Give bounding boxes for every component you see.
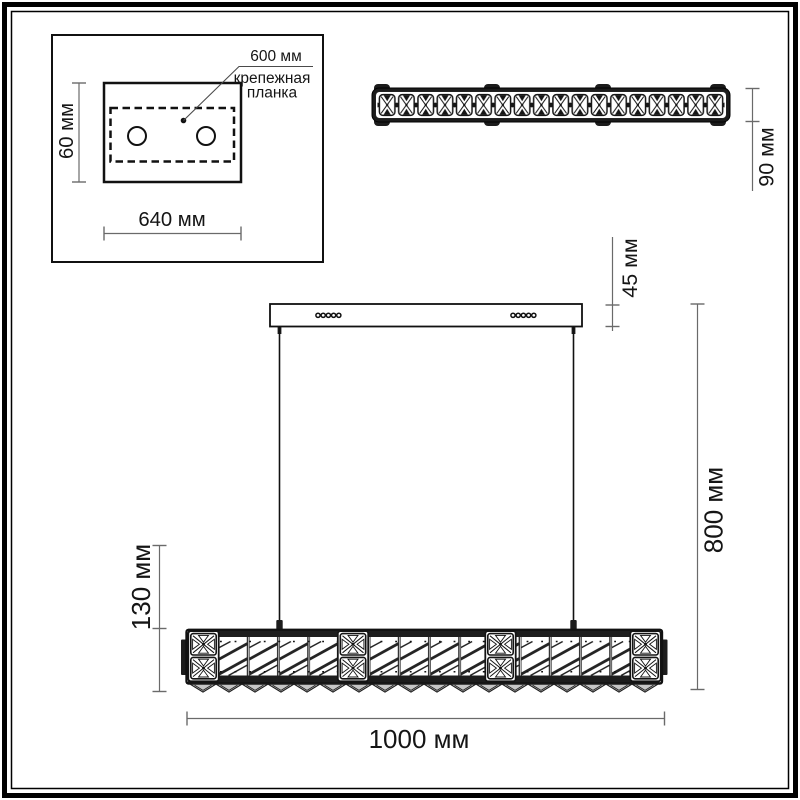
dimension-90mm: 90 мм [746, 88, 779, 191]
ceiling-plate-outline [104, 83, 241, 182]
bar-bottom-rail [188, 676, 660, 683]
bar-top-rail [188, 631, 660, 638]
dimension-1000mm: 1000 мм [187, 712, 665, 755]
suspension-wire-right [570, 327, 576, 631]
dimension-diagram: 600 мм крепежная планка 60 мм 640 мм [0, 0, 800, 800]
facet-section-2 [369, 637, 486, 676]
diagram-page: 600 мм крепежная планка 60 мм 640 мм [0, 0, 800, 800]
dimension-800mm: 800 мм [691, 304, 729, 690]
crystal-scallops [190, 684, 658, 694]
overall-height-label: 800 мм [699, 467, 729, 553]
canopy-height-label: 45 мм [618, 238, 642, 297]
front-view-drawing: 45 мм 800 мм 130 мм 1000 мм [126, 237, 729, 754]
bar-depth-label: 90 мм [755, 127, 779, 186]
plate-height-label: 60 мм [56, 103, 78, 159]
dimension-45mm: 45 мм [606, 237, 643, 331]
hole-spacing-label: 600 мм [250, 48, 301, 65]
bar-width-label: 1000 мм [369, 724, 470, 754]
crystal-bar [181, 630, 668, 694]
dimension-130mm: 130 мм [126, 544, 167, 692]
top-view-crystal-cells [378, 93, 725, 117]
bar-height-label: 130 мм [126, 544, 156, 630]
bracket-caption-line2: планка [247, 85, 298, 102]
crystal-x-panel-3 [485, 631, 515, 681]
top-view-drawing: 90 мм [372, 84, 779, 191]
mounting-plate-inset: 600 мм крепежная планка 60 мм 640 мм [52, 35, 323, 262]
plate-width-label: 640 мм [138, 209, 205, 231]
suspension-wire-left [276, 327, 282, 631]
facet-section-1 [220, 637, 339, 676]
facet-section-3 [517, 637, 631, 676]
crystal-x-panel-1 [188, 631, 218, 681]
crystal-x-panel-2 [338, 631, 368, 681]
crystal-x-panel-4 [630, 631, 660, 681]
